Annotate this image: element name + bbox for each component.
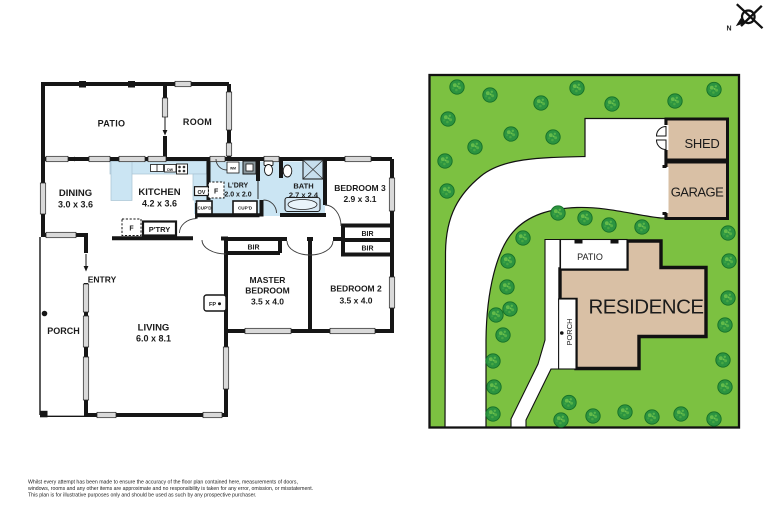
svg-text:BEDROOM: BEDROOM — [245, 286, 289, 296]
svg-text:ROOM: ROOM — [183, 117, 212, 127]
svg-text:windows, rooms and any other i: windows, rooms and any other items are a… — [28, 486, 313, 492]
svg-text:L'DRY: L'DRY — [228, 183, 249, 190]
svg-text:F: F — [214, 189, 219, 196]
svg-text:BATH: BATH — [293, 182, 313, 191]
svg-text:BIR: BIR — [361, 231, 373, 238]
svg-text:BIR: BIR — [361, 246, 373, 253]
svg-text:2.0 x 2.0: 2.0 x 2.0 — [224, 192, 251, 199]
svg-text:BEDROOM 2: BEDROOM 2 — [330, 284, 382, 294]
svg-text:RESIDENCE: RESIDENCE — [588, 296, 703, 319]
svg-text:This plan is for illustrative: This plan is for illustrative purposes o… — [28, 492, 256, 498]
svg-text:4.2 x 3.6: 4.2 x 3.6 — [142, 199, 177, 209]
svg-text:FP: FP — [209, 302, 216, 308]
svg-text:LIVING: LIVING — [138, 323, 170, 334]
svg-text:PORCH: PORCH — [565, 318, 574, 345]
svg-text:DW: DW — [167, 168, 174, 172]
svg-text:6.0 x 8.1: 6.0 x 8.1 — [136, 334, 171, 344]
svg-text:2.9 x 3.1: 2.9 x 3.1 — [343, 194, 376, 204]
svg-text:3.5 x 4.0: 3.5 x 4.0 — [251, 297, 284, 307]
svg-text:WM: WM — [230, 167, 236, 171]
svg-text:Whilst every attempt has been: Whilst every attempt has been made to en… — [28, 480, 298, 486]
svg-text:BEDROOM 3: BEDROOM 3 — [334, 183, 386, 193]
svg-text:PATIO: PATIO — [98, 119, 126, 129]
svg-text:DINING: DINING — [59, 188, 92, 199]
svg-text:PORCH: PORCH — [47, 326, 80, 336]
svg-text:MASTER: MASTER — [250, 275, 286, 285]
svg-text:F: F — [129, 226, 134, 233]
svg-text:3.5 x 4.0: 3.5 x 4.0 — [339, 296, 372, 306]
svg-text:BIR: BIR — [247, 245, 259, 252]
svg-text:CUP'D: CUP'D — [197, 206, 212, 211]
svg-text:KITCHEN: KITCHEN — [138, 187, 180, 198]
svg-text:P'TRY: P'TRY — [149, 225, 171, 234]
svg-text:3.0 x 3.6: 3.0 x 3.6 — [58, 200, 93, 210]
svg-text:GARAGE: GARAGE — [671, 185, 724, 200]
svg-text:2.7 x 2.4: 2.7 x 2.4 — [289, 191, 319, 200]
svg-text:OV: OV — [198, 190, 206, 196]
svg-text:SHED: SHED — [685, 136, 720, 151]
svg-text:CUP'D: CUP'D — [238, 206, 253, 211]
svg-text:PATIO: PATIO — [577, 252, 603, 262]
svg-text:N: N — [726, 26, 731, 33]
svg-text:ENTRY: ENTRY — [88, 275, 117, 285]
